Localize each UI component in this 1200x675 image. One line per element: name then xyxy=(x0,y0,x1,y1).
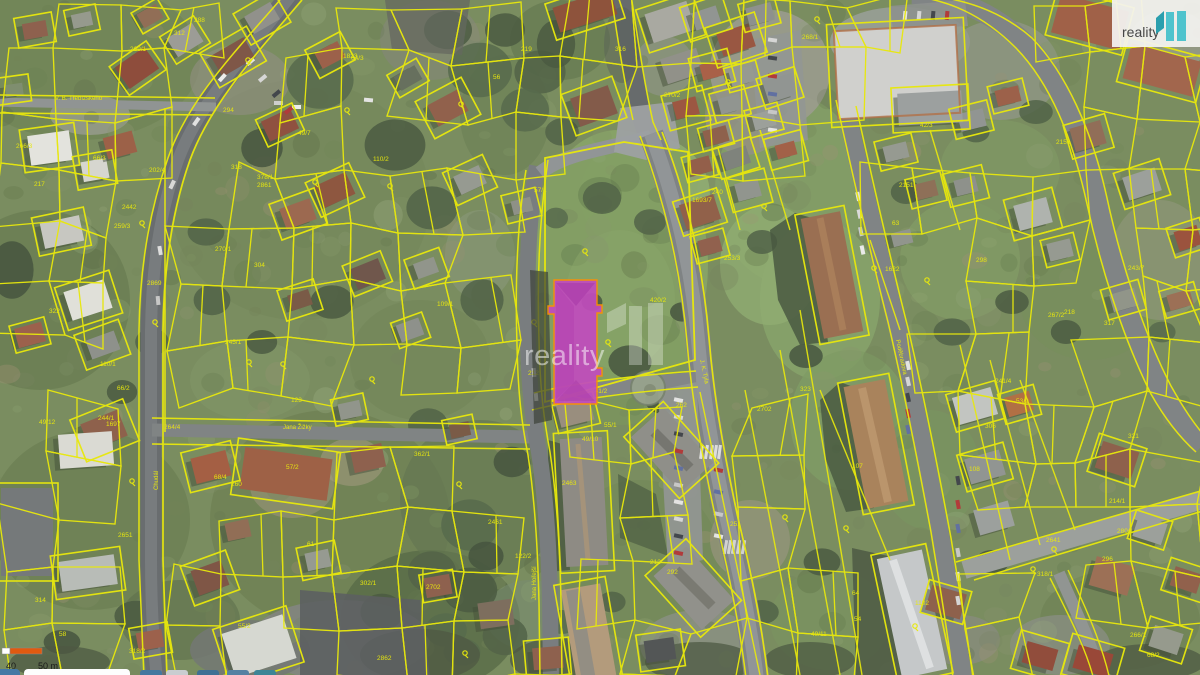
svg-text:reality: reality xyxy=(524,340,605,372)
svg-text:reality: reality xyxy=(1122,24,1159,40)
